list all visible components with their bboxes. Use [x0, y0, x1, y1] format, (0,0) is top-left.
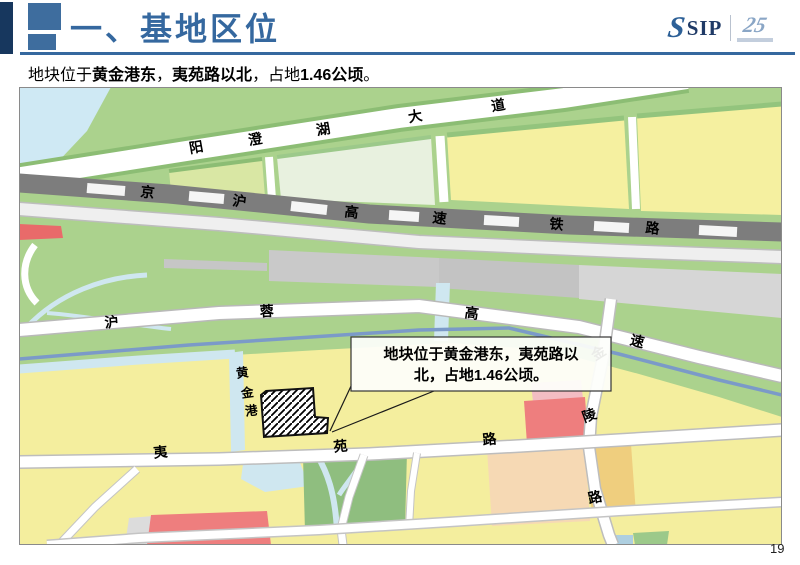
location-map: 阳 澄 湖 大 道 京 沪 高 速 铁 路 沪 蓉 高 速 金 陵 路 夷 苑 … — [19, 87, 782, 545]
sip-s-icon: S — [666, 13, 687, 43]
road-label-char: 道 — [490, 96, 507, 114]
red-parcel — [19, 224, 63, 240]
page-number: 19 — [770, 541, 784, 556]
waterway-label-char: 金 — [239, 384, 255, 401]
anniversary-tagline-icon — [737, 38, 773, 42]
road-label-char: 高 — [464, 304, 480, 322]
header-rule — [20, 52, 795, 55]
header-square-large — [28, 3, 61, 30]
subtitle-seg: ，占地 — [252, 67, 300, 84]
railway-label-char: 铁 — [549, 215, 565, 232]
anniversary-badge: 25 — [737, 14, 773, 42]
connector-road — [269, 157, 272, 199]
road-label-char: 夷 — [152, 443, 170, 461]
green-parcel — [633, 531, 669, 545]
header-navy-bar — [0, 2, 13, 54]
railway-label-char: 高 — [344, 203, 360, 221]
header-square-small — [28, 34, 56, 50]
subtitle-seg-bold: 黄金港东 — [92, 67, 156, 84]
subtitle: 地块位于黄金港东，夷苑路以北，占地1.46公顷。 — [28, 61, 379, 85]
sip-logo-text: SIP — [687, 16, 723, 41]
sip-logo: S SIP 25 — [668, 9, 773, 47]
map-svg: 阳 澄 湖 大 道 京 沪 高 速 铁 路 沪 蓉 高 速 金 陵 路 夷 苑 … — [19, 87, 782, 545]
callout-text-line2: 北，占地1.46公顷。 — [414, 366, 548, 384]
subtitle-seg-bold: 1.46公顷 — [300, 67, 363, 84]
callout-text-line1: 地块位于黄金港东，夷苑路以 — [383, 345, 578, 363]
road-label-char: 蓉 — [259, 303, 275, 320]
subtitle-seg: ， — [156, 67, 172, 84]
railway-label-char: 路 — [645, 219, 662, 236]
waterway-label-char: 黄 — [235, 364, 250, 381]
logo-divider — [730, 15, 731, 41]
subtitle-seg-bold: 夷苑路以北 — [172, 67, 252, 84]
road-label-char: 苑 — [332, 437, 349, 454]
land-block — [637, 104, 782, 215]
road-label-char: 湖 — [315, 120, 332, 138]
subtitle-seg: 。 — [363, 67, 379, 84]
road-label-char: 大 — [407, 107, 424, 125]
connector-road — [440, 136, 444, 202]
railway-label-char: 京 — [140, 183, 156, 201]
anniversary-number: 25 — [742, 14, 769, 36]
page-title: 一、基地区位 — [70, 4, 280, 50]
road-label-char: 路 — [482, 430, 499, 447]
railway-label-char: 沪 — [232, 192, 248, 210]
railway-label-char: 速 — [432, 209, 448, 227]
road-label-char: 阳 — [188, 138, 205, 156]
road-label-char: 沪 — [104, 313, 119, 330]
connector-road — [632, 117, 636, 209]
subtitle-seg: 地块位于 — [28, 67, 92, 84]
slide: 一、基地区位 S SIP 25 地块位于黄金港东，夷苑路以北，占地1.46公顷。 — [0, 0, 800, 565]
waterway-label-char: 港 — [244, 402, 259, 419]
